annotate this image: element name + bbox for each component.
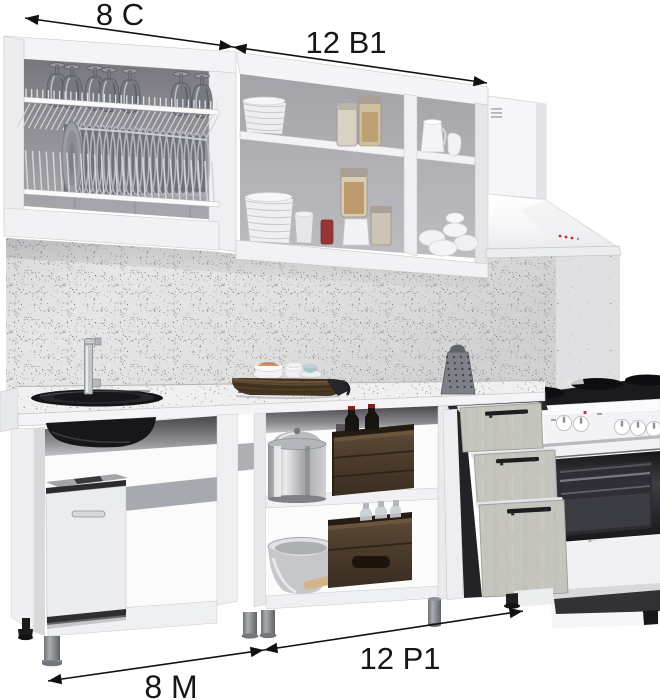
svg-text:8 М: 8 М: [144, 669, 197, 700]
svg-text:12 Р1: 12 Р1: [359, 641, 440, 676]
svg-text:12 В1: 12 В1: [305, 25, 386, 60]
svg-text:8 С: 8 С: [96, 0, 144, 32]
